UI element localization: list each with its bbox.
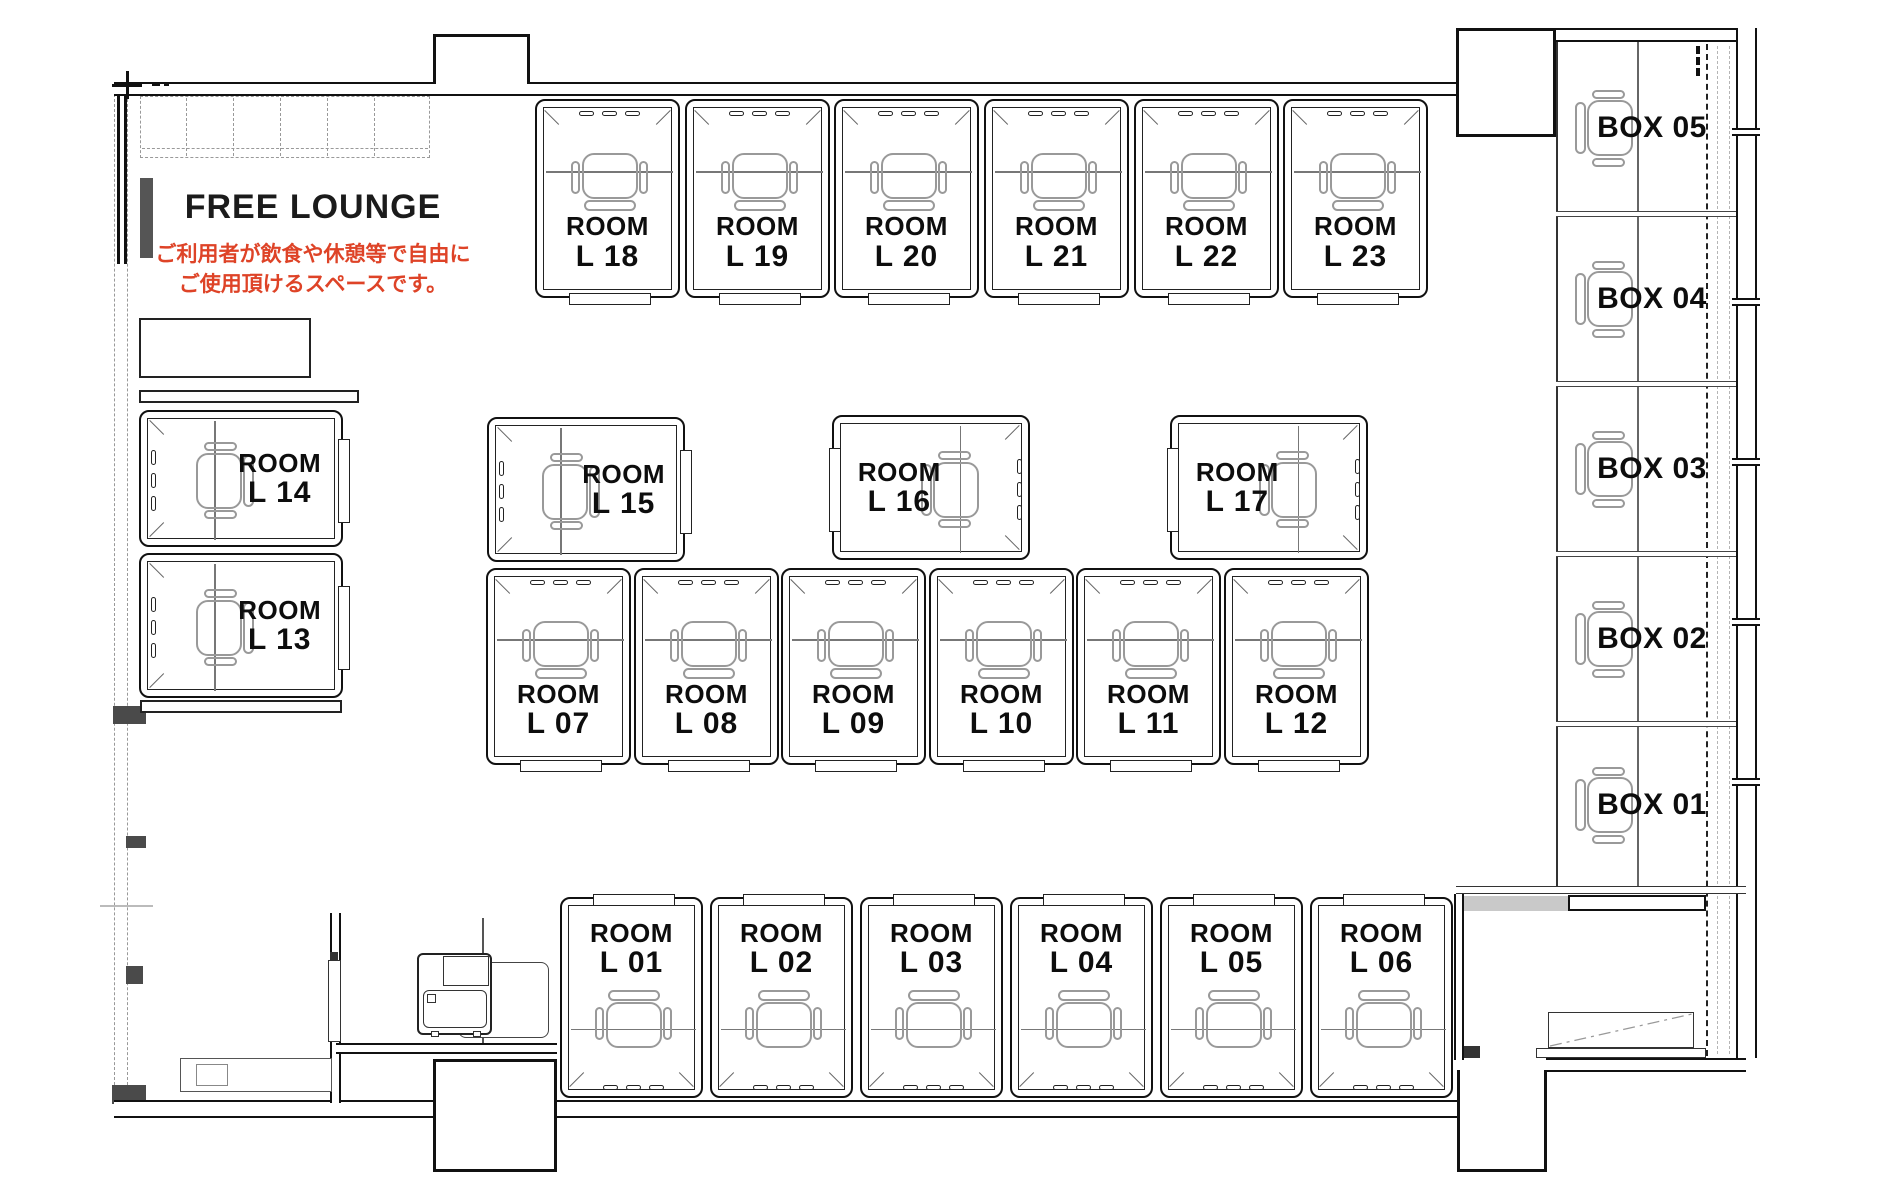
desk-dash: [1178, 111, 1193, 116]
room-label-L07: ROOML 07: [488, 680, 629, 740]
free-lounge-desc-line1: ご利用者が飲食や休憩等で自由に: [123, 238, 503, 268]
wall-fill: [140, 178, 153, 258]
room-label-text: ROOM: [1136, 212, 1277, 240]
desk-dash: [1373, 111, 1388, 116]
room-label-L05: ROOML 05: [1162, 919, 1301, 979]
chair-armrest: [885, 629, 894, 662]
chair-backrest: [1332, 200, 1384, 211]
room-label-text: ROOM: [219, 595, 341, 623]
room-number-text: L 01: [562, 947, 701, 979]
chair-armrest: [663, 1007, 672, 1040]
desk-dash: [1355, 482, 1360, 497]
desk-dash: [1224, 111, 1239, 116]
room-L19: ROOML 19: [685, 99, 830, 298]
room-L05: ROOML 05: [1160, 897, 1303, 1098]
desk-dash: [848, 580, 863, 585]
chair-backrest: [1058, 990, 1110, 1001]
desk-dash: [1353, 1085, 1368, 1090]
desk-dash: [753, 1085, 768, 1090]
room-number-text: L 19: [687, 241, 828, 273]
room-label-text: ROOM: [1078, 680, 1219, 708]
shoe-cabinet-diagonal: [1548, 1012, 1694, 1048]
wall-box: [196, 1064, 228, 1086]
room-number-text: L 17: [1178, 485, 1297, 517]
room-label-text: ROOM: [1312, 919, 1451, 947]
wall-horizontal: [114, 82, 1456, 96]
wall-box: [139, 390, 359, 403]
chair-armrest: [738, 629, 747, 662]
room-label-text: ROOM: [687, 212, 828, 240]
wall-box: [1456, 28, 1556, 137]
chair-armrest: [1180, 629, 1189, 662]
room-L17: ROOML 17: [1170, 415, 1368, 560]
room-L20: ROOML 20: [834, 99, 979, 298]
desk-dash: [1327, 111, 1342, 116]
wall-box: [443, 956, 489, 986]
chair-armrest: [1319, 161, 1328, 194]
desk-dash: [799, 1085, 814, 1090]
chair-armrest: [938, 161, 947, 194]
chair-armrest: [938, 519, 971, 528]
room-label-L11: ROOML 11: [1078, 680, 1219, 740]
room-number-text: L 09: [783, 708, 924, 740]
room-label-L17: ROOML 17: [1178, 457, 1297, 517]
chair-seat: [533, 621, 589, 667]
room-label-L18: ROOML 18: [537, 212, 678, 272]
chair-seat: [881, 153, 937, 199]
room-number-text: L 16: [840, 485, 959, 517]
room-label-text: ROOM: [712, 919, 851, 947]
chair-backrest: [1033, 200, 1085, 211]
chair-armrest: [721, 161, 730, 194]
desk-dash: [924, 111, 939, 116]
desk-dash: [151, 496, 156, 511]
desk-dash: [1076, 1085, 1091, 1090]
desk-dash: [1017, 505, 1022, 520]
room-label-text: ROOM: [1285, 212, 1426, 240]
desk-dash: [825, 580, 840, 585]
chair-armrest: [1113, 1007, 1122, 1040]
room-label-L23: ROOML 23: [1285, 212, 1426, 272]
room-door: [520, 760, 602, 772]
room-L01: ROOML 01: [560, 897, 703, 1098]
box-label-BOX01: BOX 01: [1572, 724, 1732, 886]
room-label-text: ROOM: [219, 448, 341, 476]
desk-dash: [1053, 1085, 1068, 1090]
room-label-L04: ROOML 04: [1012, 919, 1151, 979]
chair-armrest: [595, 1007, 604, 1040]
desk-dash: [903, 1085, 918, 1090]
desk-dash: [901, 111, 916, 116]
desk-dash: [649, 1085, 664, 1090]
chair-seat: [828, 621, 884, 667]
desk-dash: [499, 484, 504, 499]
chair-backrest: [758, 990, 810, 1001]
chair-backrest: [535, 668, 587, 679]
chair-armrest: [1413, 1007, 1422, 1040]
desk-dash: [1314, 580, 1329, 585]
desk-dash: [973, 580, 988, 585]
chair-armrest: [590, 629, 599, 662]
room-door: [893, 894, 975, 906]
chair-armrest: [1033, 629, 1042, 662]
room-door: [1168, 293, 1250, 305]
desk-dash: [553, 580, 568, 585]
desk-dash: [1120, 580, 1135, 585]
room-label-L20: ROOML 20: [836, 212, 977, 272]
desk-dash: [701, 580, 716, 585]
desk-dash: [724, 580, 739, 585]
desk-dash: [752, 111, 767, 116]
room-label-L13: ROOML 13: [219, 595, 341, 655]
chair-backrest: [978, 668, 1030, 679]
room-label-text: ROOM: [1226, 680, 1367, 708]
chair-armrest: [1260, 629, 1269, 662]
chair-seat: [976, 621, 1032, 667]
room-label-text: ROOM: [562, 919, 701, 947]
desk-dash: [878, 111, 893, 116]
wall-horizontal: [1546, 1058, 1746, 1072]
room-label-text: ROOM: [537, 212, 678, 240]
chair-armrest: [745, 1007, 754, 1040]
room-number-text: L 08: [636, 708, 777, 740]
room-door: [719, 293, 801, 305]
chair-armrest: [639, 161, 648, 194]
window-mullion-tick: [1732, 298, 1760, 306]
chair-armrest: [1020, 161, 1029, 194]
room-L04: ROOML 04: [1010, 897, 1153, 1098]
room-number-text: L 12: [1226, 708, 1367, 740]
box-label-BOX04: BOX 04: [1572, 214, 1732, 384]
desk-dash: [151, 620, 156, 635]
box-label-text: BOX 05: [1597, 111, 1707, 145]
wall-horizontal: [336, 1043, 557, 1054]
desk-dash: [530, 580, 545, 585]
desk-dash: [1099, 1085, 1114, 1090]
desk-dash: [1268, 580, 1283, 585]
window-mullion-tick: [1732, 458, 1760, 466]
room-L06: ROOML 06: [1310, 897, 1453, 1098]
chair-backrest: [683, 668, 735, 679]
chair-seat: [1123, 621, 1179, 667]
room-door: [1043, 894, 1125, 906]
room-label-text: ROOM: [862, 919, 1001, 947]
wall-fill: [152, 83, 160, 86]
desk-dash: [602, 111, 617, 116]
box-label-text: BOX 03: [1597, 452, 1707, 486]
box-label-text: BOX 02: [1597, 622, 1707, 656]
desk-dash: [1019, 580, 1034, 585]
dashed-line-vertical: [114, 84, 115, 1100]
desk-dash: [1017, 459, 1022, 474]
desk-dash: [1355, 459, 1360, 474]
room-number-text: L 07: [488, 708, 629, 740]
room-L16: ROOML 16: [832, 415, 1030, 560]
wall-box: [473, 1031, 481, 1037]
chair-backrest: [1125, 668, 1177, 679]
wall-box: [427, 994, 436, 1003]
chair-armrest: [965, 629, 974, 662]
chair-seat: [1206, 1002, 1262, 1048]
room-door: [1343, 894, 1425, 906]
room-L22: ROOML 22: [1134, 99, 1279, 298]
box-label-BOX02: BOX 02: [1572, 554, 1732, 724]
room-L12: ROOML 12: [1224, 568, 1369, 765]
desk-dash: [625, 111, 640, 116]
chair-backrest: [1208, 990, 1260, 1001]
chair-armrest: [522, 629, 531, 662]
chair-backrest: [908, 990, 960, 1001]
chair-armrest: [204, 657, 237, 666]
chair-seat: [1031, 153, 1087, 199]
desk-dash: [926, 1085, 941, 1090]
desk-dash: [499, 461, 504, 476]
desk-dash: [949, 1085, 964, 1090]
chair-seat: [582, 153, 638, 199]
desk-dash: [1291, 580, 1306, 585]
chair-armrest: [1045, 1007, 1054, 1040]
chair-armrest: [1328, 629, 1337, 662]
chair-seat: [732, 153, 788, 199]
window-mullion-tick: [1732, 128, 1760, 136]
room-label-L08: ROOML 08: [636, 680, 777, 740]
chair-armrest: [550, 521, 583, 530]
chair-armrest: [789, 161, 798, 194]
desk-dash: [1350, 111, 1365, 116]
desk-dash: [1201, 111, 1216, 116]
chair-seat: [756, 1002, 812, 1048]
desk-dash: [776, 1085, 791, 1090]
room-door: [569, 293, 651, 305]
chair-armrest: [1263, 1007, 1272, 1040]
room-door: [963, 760, 1045, 772]
chair-seat: [1056, 1002, 1112, 1048]
chair-armrest: [963, 1007, 972, 1040]
wall-box: [1568, 895, 1706, 911]
room-label-text: ROOM: [986, 212, 1127, 240]
room-label-text: ROOM: [840, 457, 959, 485]
chair-armrest: [1170, 161, 1179, 194]
room-number-text: L 18: [537, 241, 678, 273]
window-mullion-tick: [1732, 778, 1760, 786]
free-lounge-desc-line2: ご使用頂けるスペースです。: [123, 268, 503, 298]
room-number-text: L 04: [1012, 947, 1151, 979]
room-label-L12: ROOML 12: [1226, 680, 1367, 740]
room-label-L09: ROOML 09: [783, 680, 924, 740]
box-label-BOX03: BOX 03: [1572, 384, 1732, 554]
room-number-text: L 13: [219, 623, 341, 655]
desk-dash: [1028, 111, 1043, 116]
chair-seat: [1330, 153, 1386, 199]
desk-dash: [775, 111, 790, 116]
room-label-L14: ROOML 14: [219, 448, 341, 508]
desk-dash: [1226, 1085, 1241, 1090]
desk-dash: [151, 597, 156, 612]
wall-horizontal: [1456, 886, 1746, 894]
room-door: [668, 760, 750, 772]
chair-armrest: [204, 510, 237, 519]
wall-horizontal: [114, 1100, 433, 1118]
room-label-L19: ROOML 19: [687, 212, 828, 272]
room-number-text: L 22: [1136, 241, 1277, 273]
box-label-text: BOX 04: [1597, 282, 1707, 316]
room-door: [1258, 760, 1340, 772]
room-L02: ROOML 02: [710, 897, 853, 1098]
desk-dash: [1143, 580, 1158, 585]
chair-armrest: [1088, 161, 1097, 194]
room-label-text: ROOM: [1178, 457, 1297, 485]
chair-backrest: [584, 200, 636, 211]
chair-armrest: [1387, 161, 1396, 194]
room-number-text: L 21: [986, 241, 1127, 273]
room-L14: ROOML 14: [139, 410, 343, 547]
chair-backrest: [830, 668, 882, 679]
room-door: [1110, 760, 1192, 772]
room-number-text: L 06: [1312, 947, 1451, 979]
wall-tab: [1457, 1070, 1547, 1172]
box-label-BOX05: BOX 05: [1572, 42, 1732, 214]
room-L15: ROOML 15: [487, 417, 685, 562]
desk-dash: [678, 580, 693, 585]
wall-fill: [126, 966, 143, 984]
room-label-text: ROOM: [931, 680, 1072, 708]
chair-armrest: [1195, 1007, 1204, 1040]
desk-dash: [576, 580, 591, 585]
floorplan: FREE LOUNGE ご利用者が飲食や休憩等で自由に ご使用頂けるスペースです…: [0, 0, 1890, 1201]
chair-backrest: [883, 200, 935, 211]
room-L07: ROOML 07: [486, 568, 631, 765]
box-label-text: BOX 01: [1597, 788, 1707, 822]
room-number-text: L 02: [712, 947, 851, 979]
chair-armrest: [1238, 161, 1247, 194]
wall-box: [433, 1059, 557, 1172]
wall-fill: [1464, 1046, 1480, 1058]
wall-fill: [124, 84, 127, 264]
chair-armrest: [895, 1007, 904, 1040]
wall-fill: [100, 905, 153, 907]
chair-armrest: [670, 629, 679, 662]
window-mullion-tick: [1732, 618, 1760, 626]
desk-dash: [996, 580, 1011, 585]
room-label-text: ROOM: [1012, 919, 1151, 947]
chair-backrest: [1273, 668, 1325, 679]
chair-backrest: [608, 990, 660, 1001]
room-label-text: ROOM: [636, 680, 777, 708]
room-L08: ROOML 08: [634, 568, 779, 765]
wall-fill: [126, 71, 129, 99]
room-label-text: ROOM: [488, 680, 629, 708]
room-number-text: L 23: [1285, 241, 1426, 273]
desk-dash: [1074, 111, 1089, 116]
room-label-L01: ROOML 01: [562, 919, 701, 979]
chair-backrest: [1183, 200, 1235, 211]
room-label-text: ROOM: [564, 459, 683, 487]
wall-vertical: [1736, 28, 1757, 1058]
wall-box: [1536, 1048, 1706, 1058]
wall-box: [140, 700, 342, 713]
room-door: [1018, 293, 1100, 305]
room-label-L16: ROOML 16: [840, 457, 959, 517]
room-L09: ROOML 09: [781, 568, 926, 765]
room-L23: ROOML 23: [1283, 99, 1428, 298]
desk-dash: [1203, 1085, 1218, 1090]
dashed-line-vertical: [127, 84, 128, 1100]
desk-dash: [579, 111, 594, 116]
desk-dash: [1399, 1085, 1414, 1090]
wall-tab: [433, 34, 530, 84]
room-L10: ROOML 10: [929, 568, 1074, 765]
wall-horizontal: [557, 1100, 1458, 1118]
wall-fill: [330, 952, 338, 960]
desk-dash: [1355, 505, 1360, 520]
chair-backrest: [1358, 990, 1410, 1001]
chair-backrest: [734, 200, 786, 211]
room-L21: ROOML 21: [984, 99, 1129, 298]
room-L18: ROOML 18: [535, 99, 680, 298]
room-number-text: L 14: [219, 476, 341, 508]
chair-seat: [681, 621, 737, 667]
room-door: [743, 894, 825, 906]
room-label-L10: ROOML 10: [931, 680, 1072, 740]
desk-dash: [603, 1085, 618, 1090]
room-door: [1317, 293, 1399, 305]
room-label-text: ROOM: [783, 680, 924, 708]
chair-armrest: [1276, 519, 1309, 528]
desk-dash: [1376, 1085, 1391, 1090]
room-label-L15: ROOML 15: [564, 459, 683, 519]
wall-vertical: [1454, 894, 1464, 1060]
chair-seat: [606, 1002, 662, 1048]
chair-seat: [1181, 153, 1237, 199]
wall-box: [328, 960, 341, 1042]
room-number-text: L 11: [1078, 708, 1219, 740]
room-label-text: ROOM: [1162, 919, 1301, 947]
wall-box: [139, 318, 311, 378]
chair-armrest: [1345, 1007, 1354, 1040]
desk-dash: [1017, 482, 1022, 497]
chair-armrest: [571, 161, 580, 194]
wall-box: [431, 1031, 439, 1037]
desk-dash: [151, 450, 156, 465]
wall-fill: [164, 83, 169, 86]
room-label-text: ROOM: [836, 212, 977, 240]
room-door: [593, 894, 675, 906]
desk-dash: [1051, 111, 1066, 116]
chair-armrest: [813, 1007, 822, 1040]
wall-fill: [117, 84, 120, 264]
wall-fill: [126, 836, 146, 848]
desk-dash: [626, 1085, 641, 1090]
room-number-text: L 10: [931, 708, 1072, 740]
room-label-L06: ROOML 06: [1312, 919, 1451, 979]
chair-seat: [1271, 621, 1327, 667]
desk-dash: [499, 507, 504, 522]
room-label-L03: ROOML 03: [862, 919, 1001, 979]
chair-seat: [1356, 1002, 1412, 1048]
room-label-L22: ROOML 22: [1136, 212, 1277, 272]
room-L13: ROOML 13: [139, 553, 343, 698]
room-number-text: L 20: [836, 241, 977, 273]
room-label-L02: ROOML 02: [712, 919, 851, 979]
chair-armrest: [1112, 629, 1121, 662]
desk-dash: [151, 473, 156, 488]
room-number-text: L 05: [1162, 947, 1301, 979]
room-door: [868, 293, 950, 305]
chair-armrest: [817, 629, 826, 662]
desk-dash: [1166, 580, 1181, 585]
desk-dash: [729, 111, 744, 116]
room-number-text: L 03: [862, 947, 1001, 979]
